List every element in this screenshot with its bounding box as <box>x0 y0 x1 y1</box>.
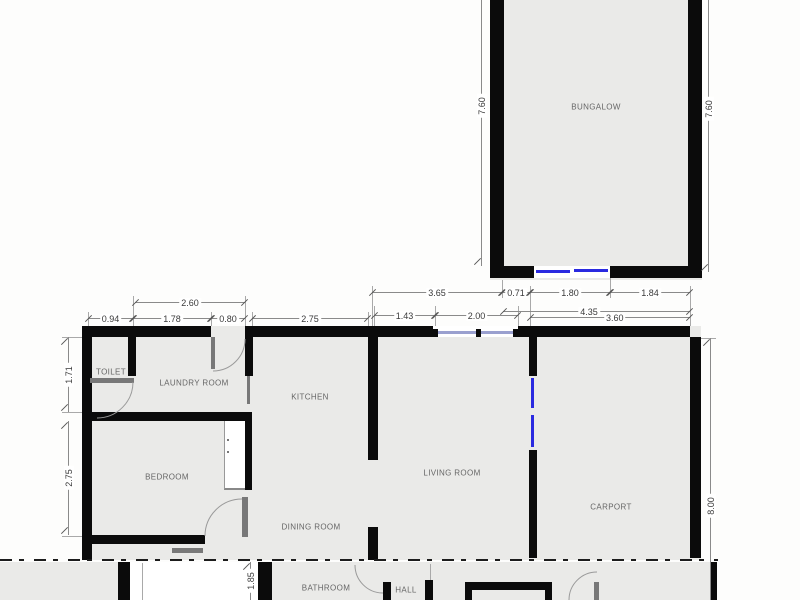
stairwell-fill <box>130 562 258 600</box>
lower-section-fill <box>0 562 710 600</box>
room-label-dining: DINING ROOM <box>282 523 341 532</box>
dim-bungalow-door: 1.80 <box>530 292 610 293</box>
stair-line <box>142 563 143 600</box>
hall-door-frame-line <box>430 564 431 580</box>
bungalow-right-wall <box>688 0 702 278</box>
closet-knob-2 <box>227 451 229 453</box>
bathroom-hall-wall <box>383 582 391 600</box>
living-carport-glass-lower <box>531 415 534 447</box>
dim-bungalow-bottom-right: 1.84 <box>610 292 690 293</box>
lower-wall-4 <box>710 562 717 600</box>
dim-carport-width: 3.60 <box>530 317 690 318</box>
laundry-kitchen-wall <box>245 337 253 376</box>
house-top-wall-c <box>518 326 690 337</box>
lower-wall-1 <box>118 562 130 600</box>
house-left-wall <box>82 337 92 560</box>
dim-kitchen-width: 2.75 <box>252 318 368 319</box>
dim-stair-depth: 1.85 <box>250 562 251 600</box>
living-carport-wall-lower <box>529 450 537 558</box>
room-label-bungalow: BUNGALOW <box>571 103 620 112</box>
ext-line <box>62 412 82 413</box>
dim-toilet-width: 0.94 <box>88 318 133 319</box>
ext-line <box>610 278 611 298</box>
room-label-bedroom: BEDROOM <box>145 473 189 482</box>
dim-toilet-height: 1.71 <box>68 337 69 412</box>
bedroom-closet <box>224 421 245 490</box>
dim-laundry-width: 1.78 <box>133 318 211 319</box>
dim-bungalow-height-right: 7.60 <box>708 0 709 272</box>
bungalow-room-fill <box>490 0 702 280</box>
dim-kitchen-living-span: 3.65 <box>372 292 502 293</box>
dim-carport-depth: 8.00 <box>710 338 711 600</box>
kitchen-window-pane-right <box>481 331 515 334</box>
kitchen-living-wall-lower <box>368 527 378 560</box>
dim-laundry-door: 0.80 <box>211 318 245 319</box>
section-cut-line <box>0 559 718 561</box>
bedroom-right-wall <box>244 421 252 490</box>
ext-line <box>518 306 519 326</box>
lower-room-left-leg <box>465 590 472 600</box>
living-carport-glass-upper <box>531 378 534 408</box>
bedroom-door-leaf <box>242 497 248 537</box>
kitchen-living-wall-upper <box>368 337 378 460</box>
kitchen-door-leaf <box>247 376 250 404</box>
kitchen-window-mullion-2 <box>476 329 481 337</box>
kitchen-window-pane-left <box>437 331 477 334</box>
bungalow-bottom-wall-left <box>490 266 534 278</box>
lower-door-lintel <box>172 548 203 553</box>
closet-knob-1 <box>227 439 229 441</box>
room-label-carport: CARPORT <box>590 503 631 512</box>
floor-plan-canvas: 2.60 0.94 1.78 0.80 2.75 1.43 2.00 3.65 … <box>0 0 800 600</box>
room-label-hall: HALL <box>395 586 416 595</box>
laundry-door-leaf <box>211 337 215 369</box>
main-house-fill <box>82 326 701 560</box>
bungalow-bottom-wall-right <box>610 266 702 278</box>
room-label-laundry: LAUNDRY ROOM <box>159 379 228 388</box>
room-label-toilet: TOILET <box>96 368 126 377</box>
bottom-right-door-leaf <box>594 582 599 600</box>
bedroom-top-wall <box>82 412 252 421</box>
room-label-bathroom: BATHROOM <box>302 584 350 593</box>
lower-wall-2 <box>258 562 272 600</box>
bungalow-glass-door-pane-left <box>536 270 570 273</box>
dim-carport-span-a: 4.35 <box>503 311 690 312</box>
bungalow-left-wall <box>490 0 504 278</box>
lower-room-right-leg <box>545 590 552 600</box>
lower-wall-3 <box>425 580 433 600</box>
bungalow-glass-door-pane-right <box>574 269 608 272</box>
living-carport-wall-upper <box>529 337 537 376</box>
house-top-wall-b <box>245 326 433 337</box>
dim-living-window: 2.00 <box>435 315 518 316</box>
dim-bungalow-height-left: 7.60 <box>481 0 482 266</box>
ext-line <box>368 312 369 326</box>
ext-line <box>62 536 82 537</box>
dim-bungalow-bottom-left: 0.71 <box>502 292 530 293</box>
house-right-wall <box>690 337 701 558</box>
lower-room-top-wall <box>465 582 552 590</box>
room-label-kitchen: KITCHEN <box>291 393 329 402</box>
dim-bedroom-height: 2.75 <box>68 421 69 535</box>
toilet-door-leaf <box>90 378 134 383</box>
kitchen-window-mullion-1 <box>433 329 438 337</box>
ext-line <box>62 337 82 338</box>
dim-living-wall-seg: 1.43 <box>374 315 435 316</box>
bedroom-bottom-wall <box>82 535 205 544</box>
house-top-wall-a <box>82 326 211 337</box>
kitchen-window-mullion-3 <box>513 329 518 337</box>
dim-laundry-total: 2.60 <box>135 302 245 303</box>
ext-line <box>133 296 134 326</box>
toilet-wall <box>128 337 136 376</box>
room-label-living: LIVING ROOM <box>423 469 480 478</box>
